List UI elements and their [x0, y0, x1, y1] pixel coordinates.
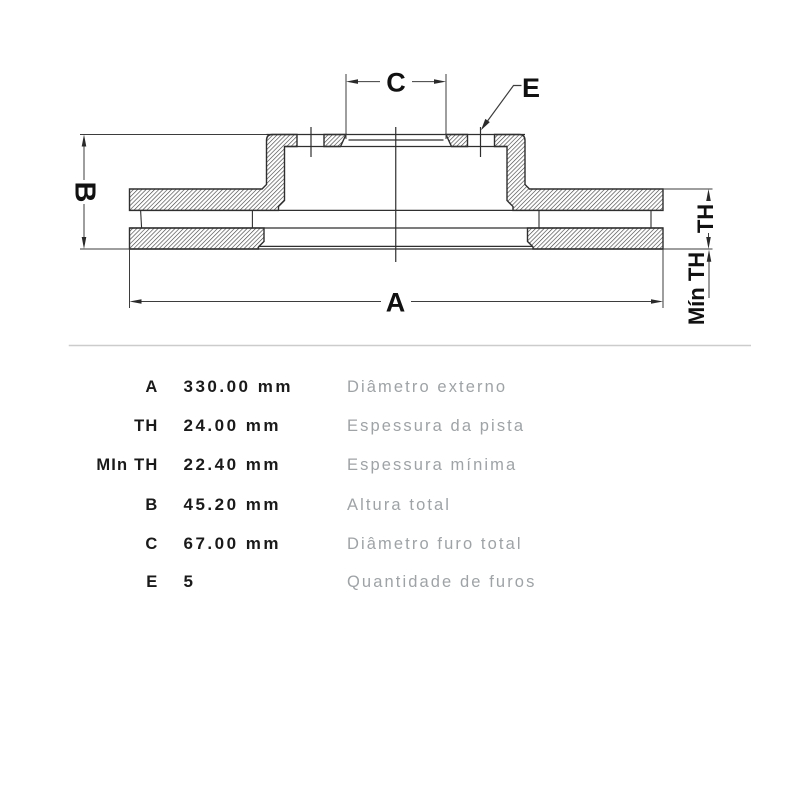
svg-text:TH: TH: [134, 417, 158, 435]
svg-text:330.00 mm: 330.00 mm: [184, 377, 293, 396]
svg-text:67.00 mm: 67.00 mm: [184, 534, 282, 553]
svg-text:Diâmetro externo: Diâmetro externo: [347, 378, 507, 396]
svg-text:B: B: [69, 182, 101, 203]
svg-text:B: B: [145, 496, 158, 514]
svg-text:C: C: [386, 68, 406, 98]
svg-text:45.20 mm: 45.20 mm: [184, 495, 282, 514]
svg-text:Quantidade de furos: Quantidade de furos: [347, 573, 536, 591]
svg-text:5: 5: [184, 572, 196, 591]
svg-text:E: E: [522, 73, 540, 103]
svg-text:Mín TH: Mín TH: [684, 252, 709, 325]
svg-text:22.40 mm: 22.40 mm: [184, 455, 282, 474]
svg-text:Espessura da pista: Espessura da pista: [347, 417, 525, 435]
svg-text:Altura total: Altura total: [347, 496, 451, 514]
svg-text:A: A: [145, 378, 158, 396]
svg-text:TH: TH: [693, 204, 718, 233]
svg-text:A: A: [386, 288, 406, 318]
svg-text:MIn TH: MIn TH: [96, 456, 158, 474]
svg-text:C: C: [145, 535, 158, 553]
svg-text:E: E: [146, 573, 158, 591]
svg-text:Diâmetro furo total: Diâmetro furo total: [347, 535, 523, 553]
svg-text:Espessura mínima: Espessura mínima: [347, 456, 517, 474]
svg-text:24.00 mm: 24.00 mm: [184, 416, 282, 435]
